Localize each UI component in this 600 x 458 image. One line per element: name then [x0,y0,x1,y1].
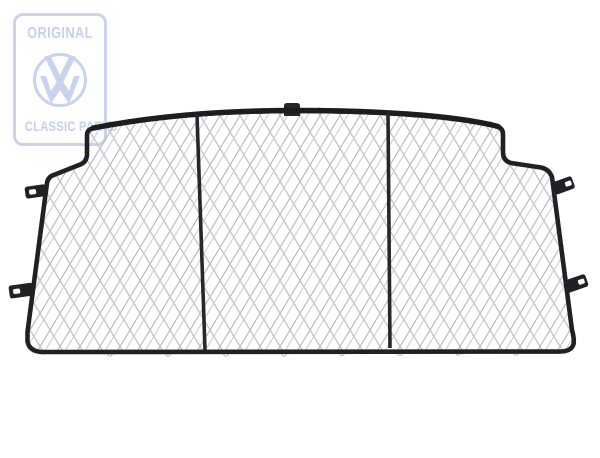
cargo-net-illustration [0,0,600,458]
product-photo: ORIGINAL CLASSIC PARTS [0,0,600,458]
net-divider-right [388,113,390,349]
net-mesh [28,111,574,352]
